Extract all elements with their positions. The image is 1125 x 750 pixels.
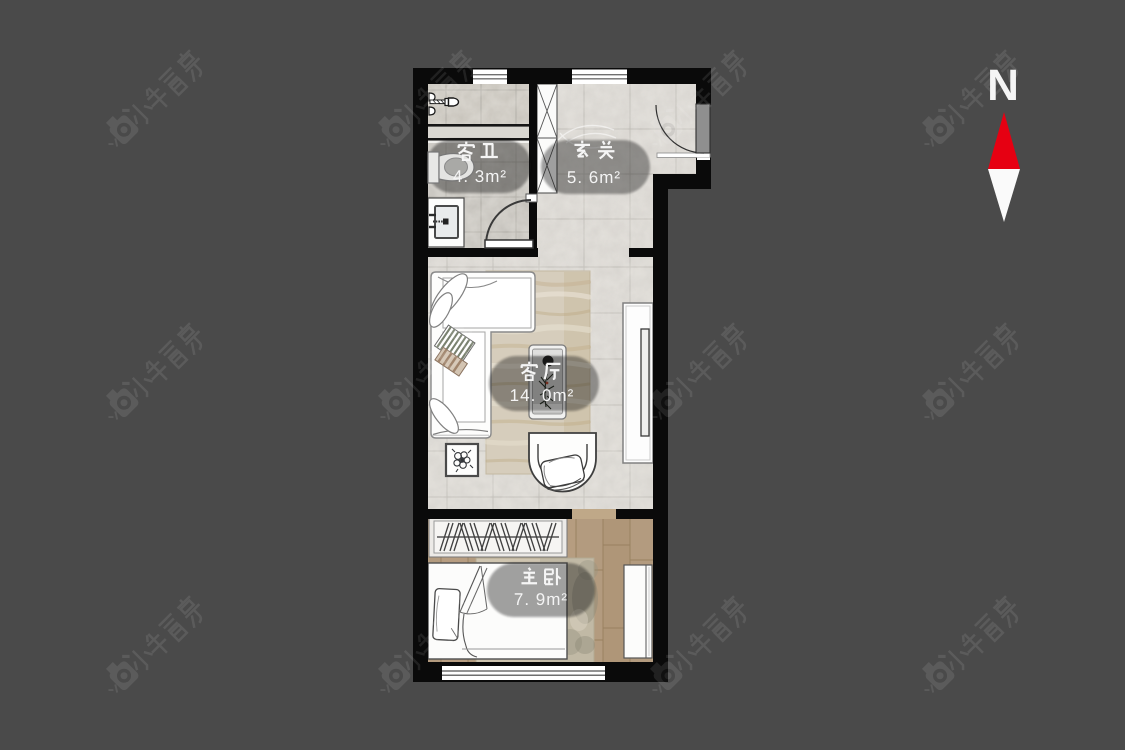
svg-text:14. 0m²: 14. 0m² bbox=[510, 386, 575, 405]
svg-text:4. 3m²: 4. 3m² bbox=[453, 167, 507, 186]
svg-text:5. 6m²: 5. 6m² bbox=[567, 168, 621, 187]
svg-text:7. 9m²: 7. 9m² bbox=[514, 590, 568, 609]
